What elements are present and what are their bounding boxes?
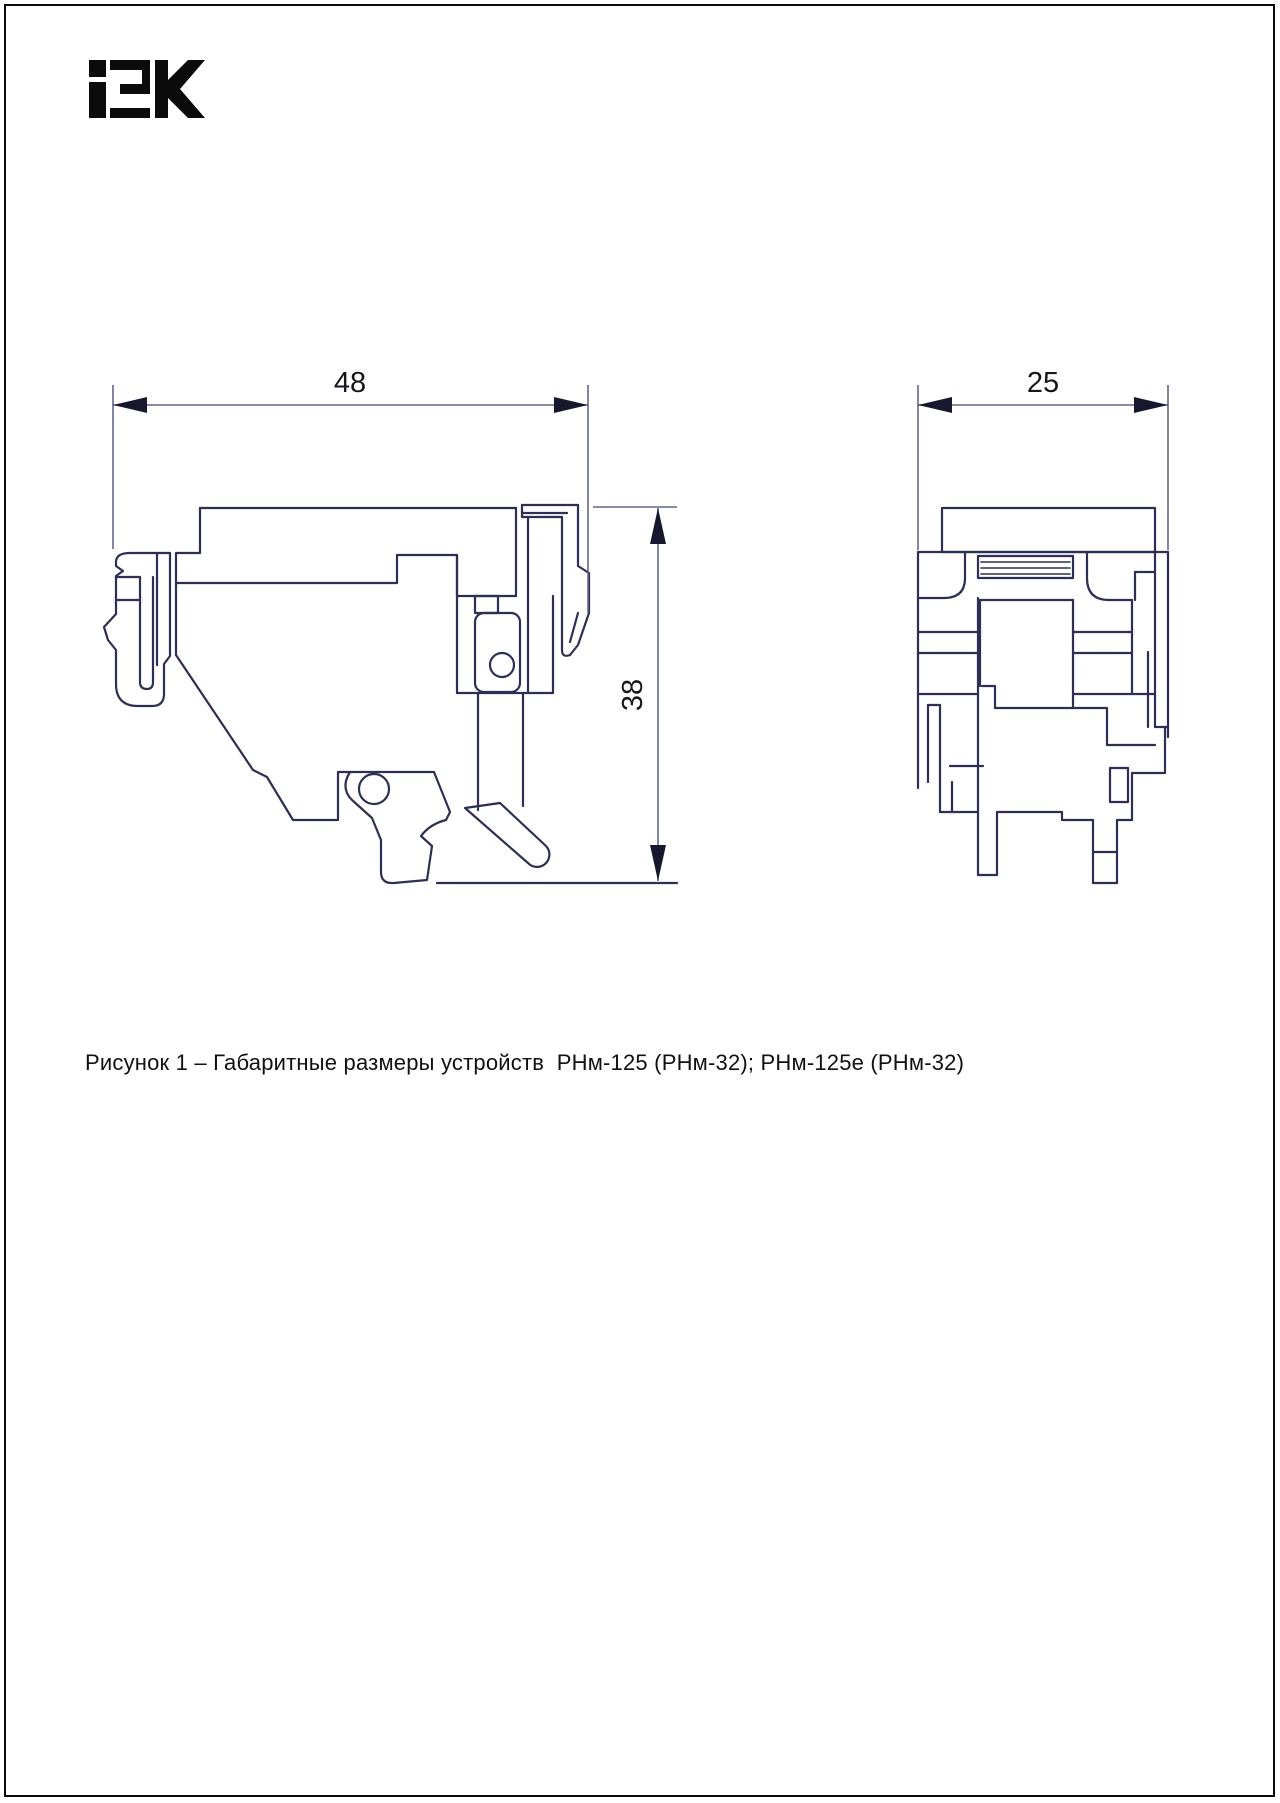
front-view-drawing bbox=[918, 508, 1168, 883]
arrow-down-icon bbox=[650, 845, 666, 881]
arrow-left-icon bbox=[918, 397, 952, 413]
arrow-right-icon bbox=[1134, 397, 1168, 413]
document-page: 48 38 25 Рисунок 1 – Габаритные размеры … bbox=[0, 0, 1280, 1803]
vent-slots bbox=[978, 556, 1073, 578]
terminal-block bbox=[475, 596, 520, 692]
dim-48-label: 48 bbox=[334, 367, 366, 399]
left-pin bbox=[978, 812, 997, 875]
arrow-up-icon bbox=[650, 508, 666, 544]
dim-25-label: 25 bbox=[1027, 367, 1059, 399]
dimension-38: 38 bbox=[593, 507, 677, 881]
front-top-cap bbox=[942, 508, 1155, 552]
latch-lever-mechanism bbox=[345, 693, 677, 883]
arrow-right-icon bbox=[554, 397, 588, 413]
dimension-25: 25 bbox=[918, 367, 1168, 550]
lever-pivot-hole bbox=[359, 774, 389, 804]
technical-drawing: 48 38 25 bbox=[0, 0, 1280, 1803]
arrow-left-icon bbox=[113, 397, 147, 413]
front-panel-details bbox=[918, 552, 1168, 812]
figure-caption: Рисунок 1 – Габаритные размеры устройств… bbox=[85, 1050, 1185, 1076]
side-view-drawing bbox=[104, 505, 677, 883]
terminal-screw-hole bbox=[490, 653, 514, 677]
device-body-side bbox=[176, 505, 589, 820]
front-bottom-terminals bbox=[928, 686, 1165, 883]
din-rail-clip bbox=[104, 553, 170, 706]
dim-38-label: 38 bbox=[617, 679, 649, 711]
